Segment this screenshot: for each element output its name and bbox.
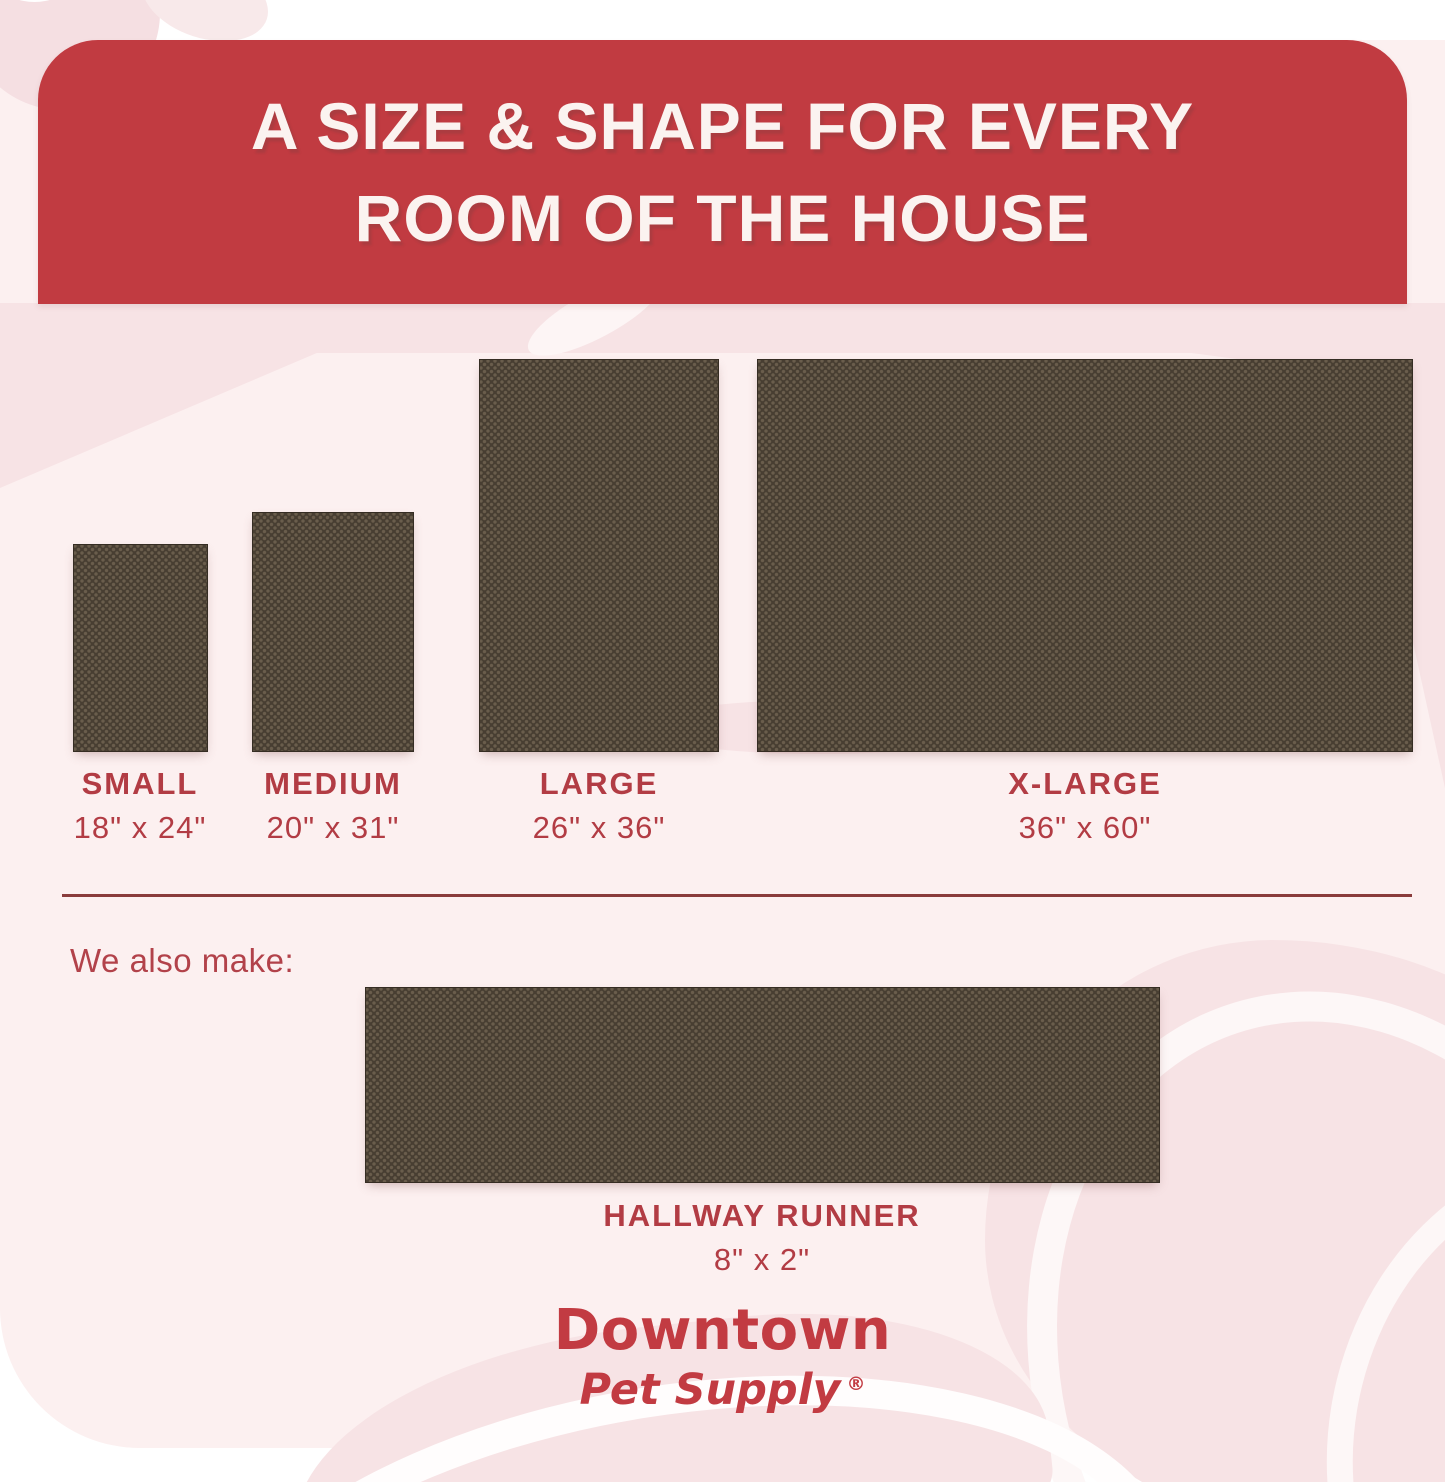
size-label-xlarge: X-LARGE 36" x 60" [935,766,1235,846]
mat-hallway-runner-swatch [365,987,1160,1183]
brand-name-primary: Downtown [0,1298,1445,1363]
header-banner: A SIZE & SHAPE FOR EVERY ROOM OF THE HOU… [38,40,1407,304]
page-title-line2: ROOM OF THE HOUSE [355,172,1091,264]
also-make-note: We also make: [70,942,294,980]
mat-medium-swatch [252,512,414,752]
size-label-large: LARGE 26" x 36" [449,766,749,846]
section-divider [62,894,1412,897]
size-name: HALLWAY RUNNER [562,1198,962,1234]
size-dimensions: 36" x 60" [935,810,1235,846]
decor-top-left-white-ring [0,0,92,2]
registered-trademark-symbol: ® [846,1373,865,1395]
size-label-hallway-runner: HALLWAY RUNNER 8" x 2" [562,1198,962,1278]
infographic-canvas: A SIZE & SHAPE FOR EVERY ROOM OF THE HOU… [0,0,1445,1482]
size-dimensions: 8" x 2" [562,1242,962,1278]
size-name: MEDIUM [183,766,483,802]
brand-secondary-text: Pet Supply [580,1365,841,1415]
page-title-line1: A SIZE & SHAPE FOR EVERY [251,80,1194,172]
size-label-medium: MEDIUM 20" x 31" [183,766,483,846]
mat-large-swatch [479,359,719,752]
size-name: LARGE [449,766,749,802]
mat-small-swatch [73,544,208,752]
size-name: X-LARGE [935,766,1235,802]
size-dimensions: 26" x 36" [449,810,749,846]
brand-logo: Downtown Pet Supply® [0,1298,1445,1415]
mat-xlarge-swatch [757,359,1413,752]
brand-name-secondary: Pet Supply® [0,1365,1445,1415]
size-dimensions: 20" x 31" [183,810,483,846]
